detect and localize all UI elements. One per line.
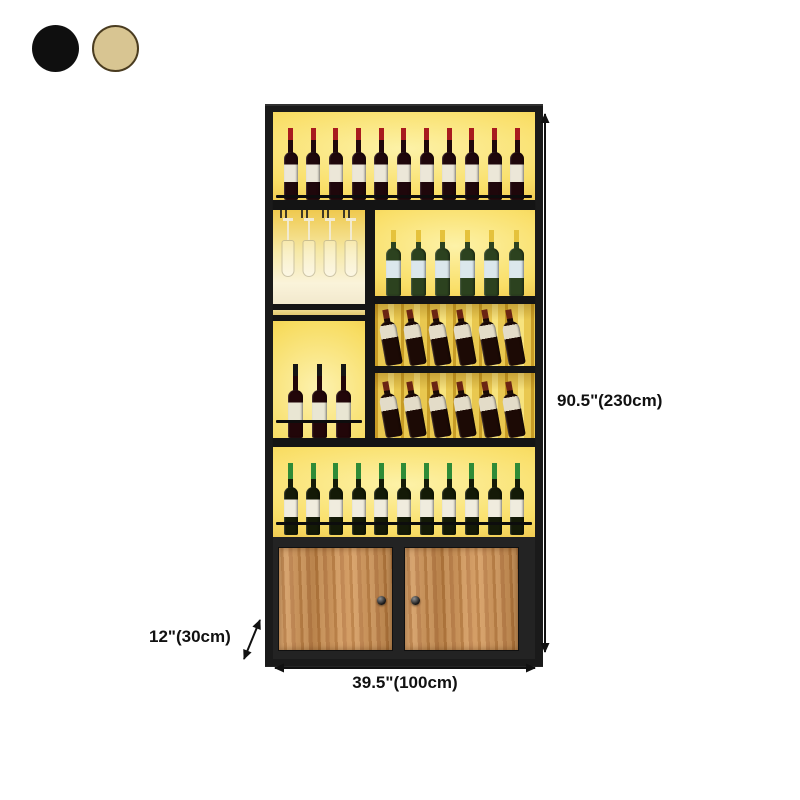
tilted-wine-bottle	[450, 308, 476, 366]
white-wine-bottle	[386, 230, 401, 296]
white-wine-bottle	[509, 230, 524, 296]
white-wine-bottle	[484, 230, 499, 296]
width-dimension-label: 39.5"(100cm)	[263, 673, 547, 693]
shelf-divider	[273, 438, 535, 447]
red-wine-bottle	[312, 364, 327, 438]
red-wine-bottle	[306, 128, 320, 200]
top-shelf-bottles	[275, 128, 533, 200]
middle-shelf-bottles	[275, 364, 363, 438]
tilted-wine-bottle	[425, 308, 451, 366]
door-knob-left	[377, 596, 386, 605]
middle-shelf-section	[273, 321, 365, 438]
tilted-rack-row1	[375, 304, 535, 366]
stemware-rack-section	[273, 210, 365, 304]
shelf-divider	[273, 200, 535, 210]
red-wine-bottle	[488, 128, 502, 200]
tilted-wine-bottle	[450, 380, 476, 438]
tilted-wine-bottle	[475, 380, 501, 438]
top-shelf-section	[273, 112, 535, 200]
base-cabinet	[273, 537, 535, 659]
tilted-wine-bottle	[475, 308, 501, 366]
stemware-hooks	[275, 210, 363, 218]
hanging-glasses	[275, 218, 363, 280]
red-wine-bottle	[397, 128, 411, 200]
white-wine-bottle	[435, 230, 450, 296]
vertical-divider	[365, 210, 375, 438]
wine-glass	[300, 218, 317, 280]
red-wine-bottle	[465, 128, 479, 200]
white-wine-bottle	[460, 230, 475, 296]
cabinet-door-left	[278, 547, 393, 651]
height-dimension-label: 90.5"(230cm)	[557, 391, 662, 411]
red-wine-bottle	[442, 128, 456, 200]
height-dimension-arrow	[537, 102, 553, 664]
tilted-wine-bottle	[500, 380, 526, 438]
tilted-wine-bottle	[376, 308, 402, 366]
red-wine-bottle	[510, 128, 524, 200]
color-swatch-black[interactable]	[32, 25, 79, 72]
wine-glass	[279, 218, 296, 280]
white-wine-bottle	[411, 230, 426, 296]
bottom-shelf-section	[273, 447, 535, 537]
tilted-bottles-row2	[377, 381, 533, 437]
door-knob-right	[411, 596, 420, 605]
bottle-rail	[276, 522, 532, 525]
red-wine-bottle	[336, 364, 351, 438]
shelf-divider	[375, 366, 535, 373]
depth-dimension-label: 12"(30cm)	[149, 627, 231, 647]
wine-glass	[342, 218, 359, 280]
bottle-rail	[276, 195, 532, 198]
red-wine-bottle	[420, 128, 434, 200]
shelf-divider	[375, 296, 535, 304]
wine-cabinet	[265, 104, 543, 667]
tilted-wine-bottle	[401, 380, 427, 438]
red-wine-bottle	[329, 128, 343, 200]
red-wine-bottle	[288, 364, 303, 438]
color-swatch-beige[interactable]	[92, 25, 139, 72]
red-wine-bottle	[374, 128, 388, 200]
wine-glass	[321, 218, 338, 280]
product-image-page: 90.5"(230cm) 39.5"(100cm) 12"(30cm)	[0, 0, 800, 800]
depth-dimension-arrow	[236, 612, 268, 668]
red-wine-bottle	[284, 128, 298, 200]
white-wine-bottles	[377, 230, 533, 296]
red-wine-bottle	[352, 128, 366, 200]
tilted-rack-row2	[375, 373, 535, 438]
tilted-wine-bottle	[376, 380, 402, 438]
tilted-wine-bottle	[425, 380, 451, 438]
tilted-wine-bottle	[500, 308, 526, 366]
tilted-wine-bottle	[401, 308, 427, 366]
cabinet-door-right	[404, 547, 519, 651]
tilted-bottles-row1	[377, 309, 533, 365]
bottle-rail	[276, 420, 362, 423]
white-wine-section	[375, 210, 535, 296]
